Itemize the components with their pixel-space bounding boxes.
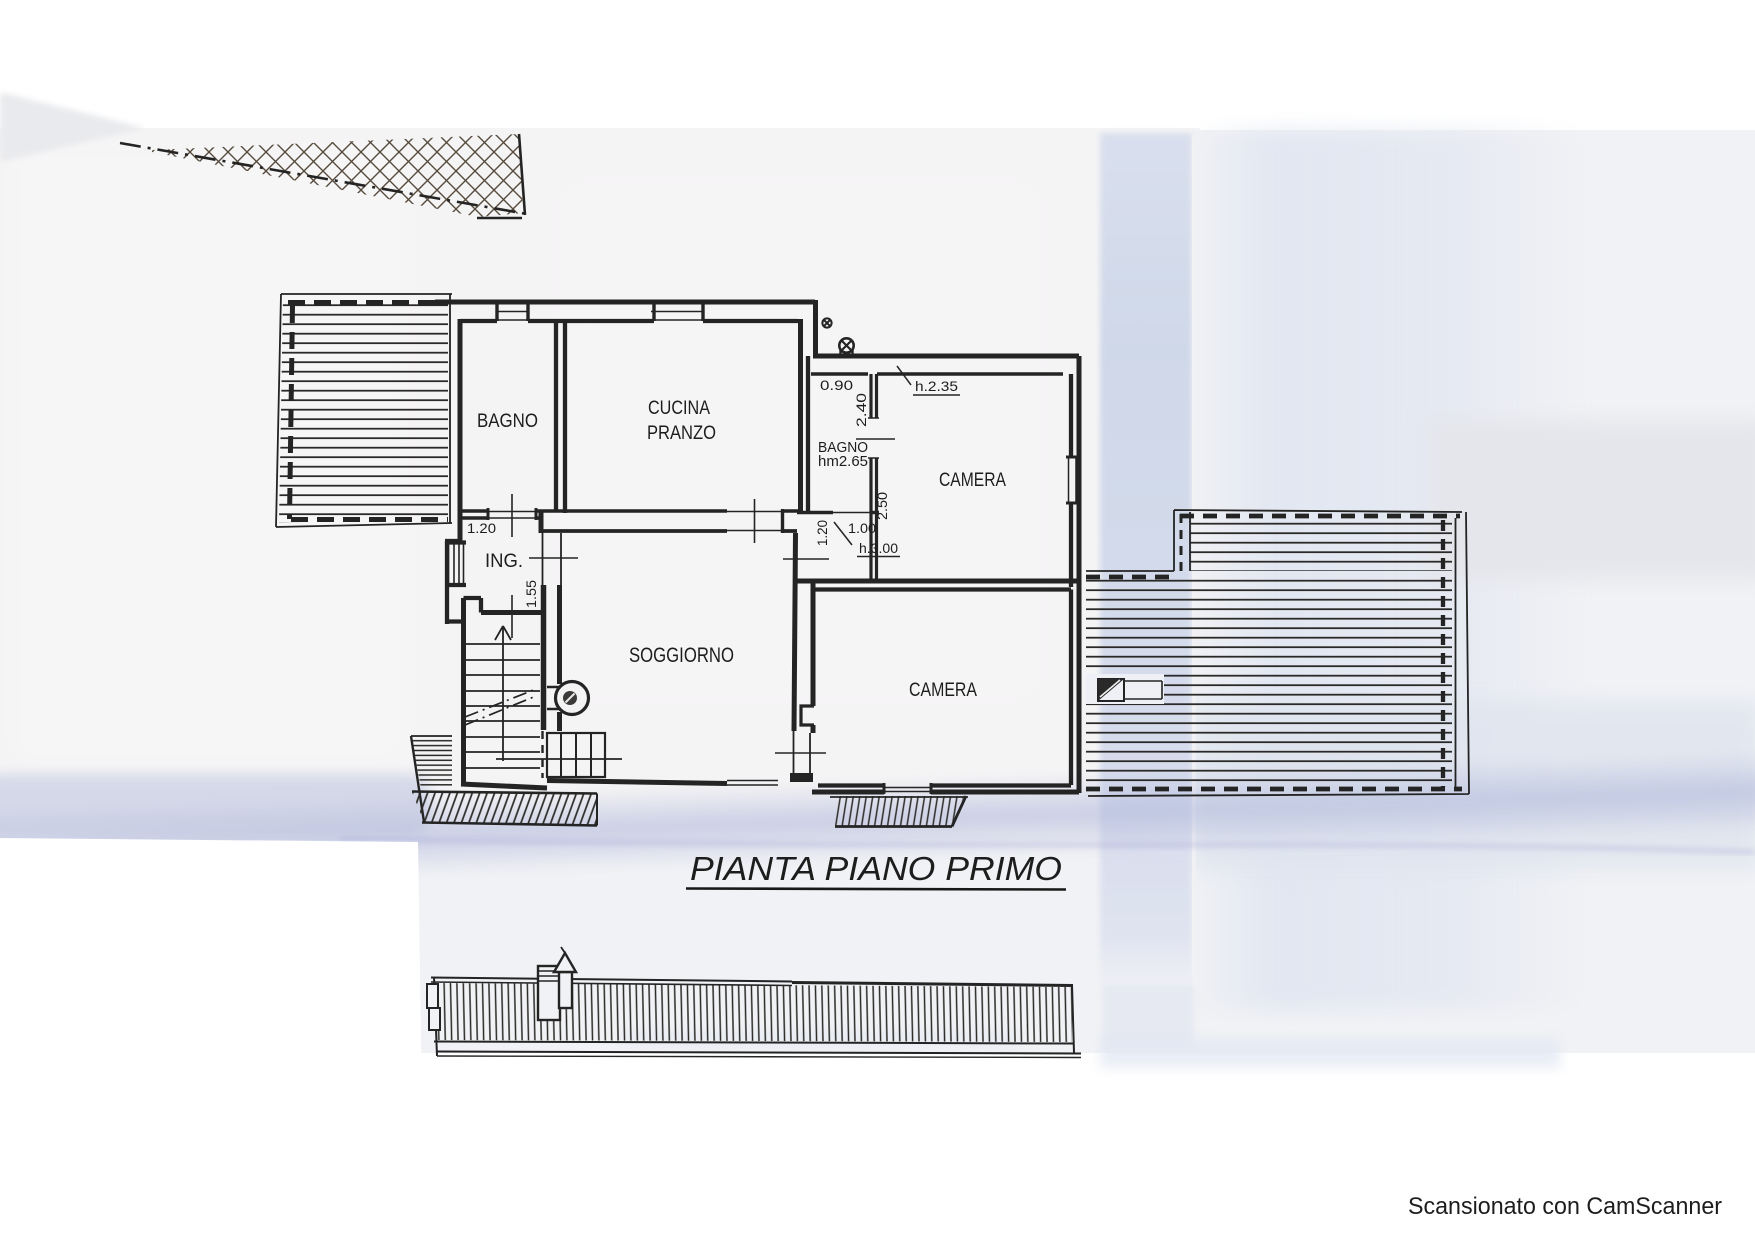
- svg-text:2.40: 2.40: [853, 393, 869, 427]
- svg-text:1.55: 1.55: [523, 580, 539, 608]
- svg-text:hm2.65: hm2.65: [818, 454, 868, 470]
- svg-text:0.90: 0.90: [820, 377, 853, 393]
- svg-text:1.00: 1.00: [848, 520, 876, 536]
- svg-text:h.2.35: h.2.35: [915, 378, 958, 394]
- svg-text:CAMERA: CAMERA: [939, 470, 1006, 491]
- svg-text:ING.: ING.: [485, 551, 523, 572]
- svg-text:CUCINA: CUCINA: [648, 398, 710, 419]
- svg-text:h.3.00: h.3.00: [859, 540, 898, 556]
- svg-text:1.20: 1.20: [467, 520, 496, 536]
- svg-text:1.20: 1.20: [814, 520, 830, 546]
- svg-text:2.50: 2.50: [874, 492, 890, 520]
- svg-text:CAMERA: CAMERA: [909, 680, 977, 701]
- svg-text:SOGGIORNO: SOGGIORNO: [629, 644, 734, 667]
- svg-text:PRANZO: PRANZO: [647, 423, 716, 444]
- svg-text:Scansionato con CamScanner: Scansionato con CamScanner: [1408, 1193, 1722, 1220]
- svg-text:PIANTA PIANO PRIMO: PIANTA PIANO PRIMO: [690, 850, 1062, 887]
- svg-text:BAGNO: BAGNO: [477, 411, 538, 432]
